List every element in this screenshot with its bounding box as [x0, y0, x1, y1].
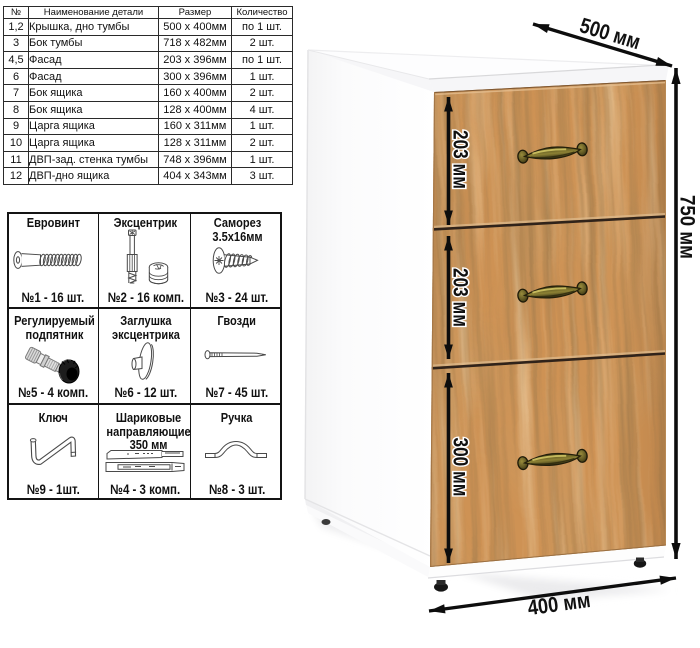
svg-text:300 мм: 300 мм	[449, 438, 473, 497]
svg-text:750 мм: 750 мм	[676, 195, 700, 259]
svg-text:203 мм: 203 мм	[449, 268, 473, 327]
svg-text:203 мм: 203 мм	[449, 130, 473, 189]
